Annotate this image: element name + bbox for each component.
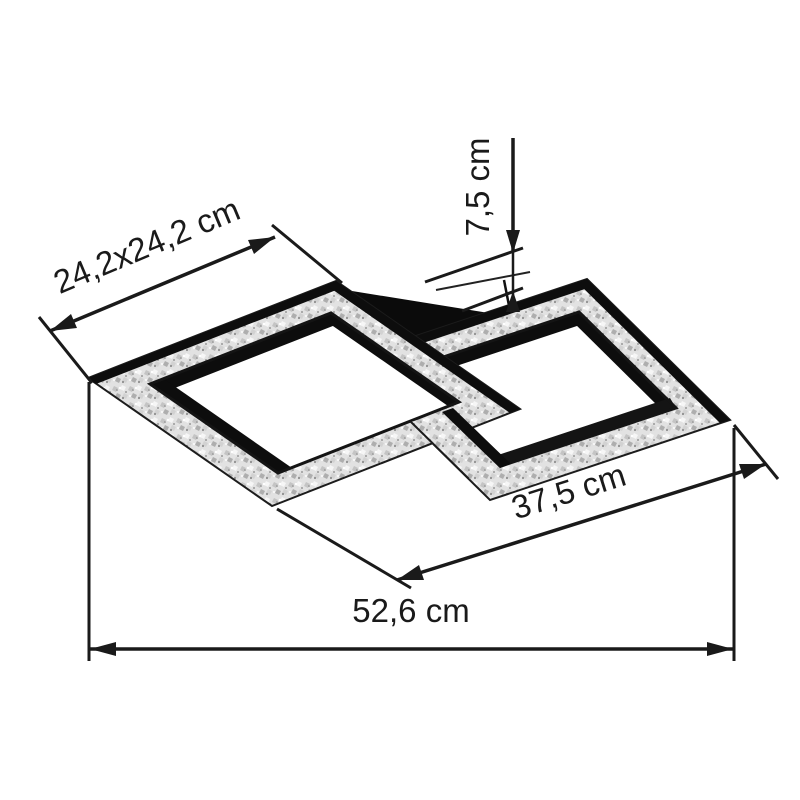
dimension-diagram: 24,2x24,2 cm 7,5 cm 37,5 cm xyxy=(0,0,800,800)
dimension-label-height: 7,5 cm xyxy=(459,137,496,236)
dimension-label-total-width: 52,6 cm xyxy=(352,592,469,629)
